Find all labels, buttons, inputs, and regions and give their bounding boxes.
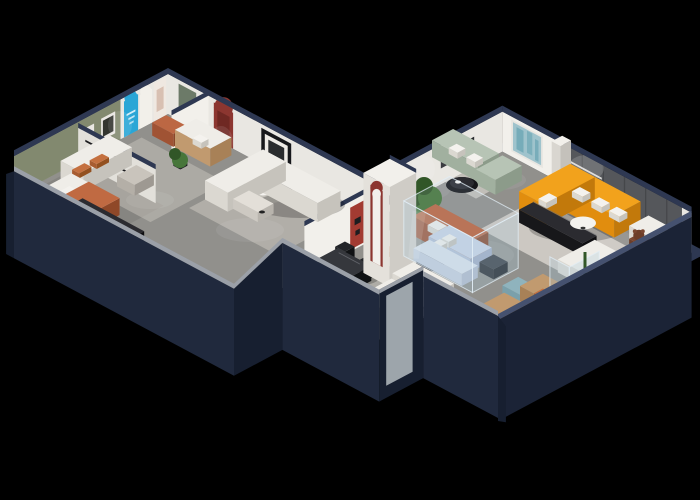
coffee-table-deco	[259, 211, 265, 214]
wall-glow	[108, 111, 132, 139]
woman-poster-figure	[157, 86, 164, 112]
teddy-bear-ear	[633, 229, 637, 233]
white-round-table-deco	[581, 227, 586, 229]
front-wall-mirror-sliver	[386, 282, 412, 386]
east-wall-corner	[498, 316, 506, 422]
render-stage: Isometric cutaway render of an L-shaped …	[0, 0, 700, 500]
lounge-plant	[169, 148, 181, 160]
front-wall-end-west	[6, 171, 14, 258]
red-arch-column-art-inner	[372, 189, 381, 199]
teal-wall-art-streak	[517, 127, 524, 153]
floor-spotlight-pool	[216, 218, 284, 242]
teal-wall-art-streak	[535, 139, 539, 162]
red-wall-panel	[350, 200, 365, 250]
teal-wall-art-streak	[527, 131, 532, 156]
red-arch-column-art-inner	[373, 192, 381, 266]
floorplan-render	[0, 0, 700, 500]
teddy-bear-ear	[641, 229, 645, 233]
